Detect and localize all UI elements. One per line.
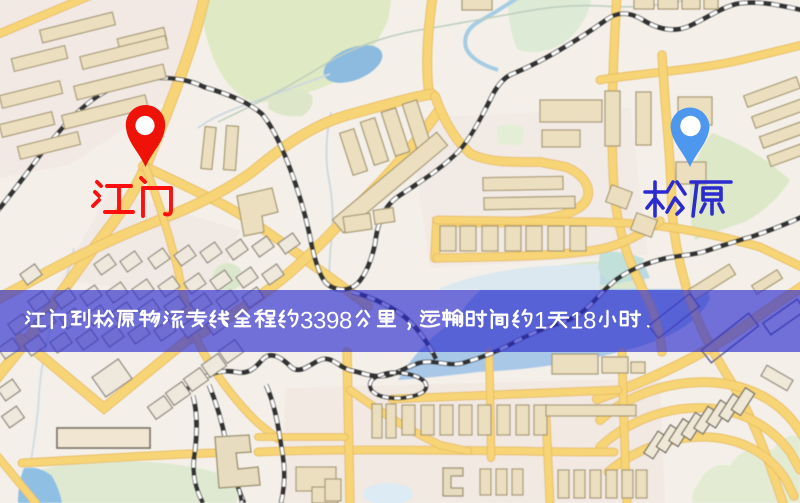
svg-text:3: 3 bbox=[300, 308, 313, 335]
svg-text:9: 9 bbox=[326, 308, 339, 335]
svg-text:3: 3 bbox=[313, 308, 326, 335]
svg-text:8: 8 bbox=[339, 308, 352, 335]
svg-text:1: 1 bbox=[534, 308, 547, 335]
svg-text:1: 1 bbox=[570, 308, 583, 335]
svg-text:8: 8 bbox=[583, 308, 596, 335]
